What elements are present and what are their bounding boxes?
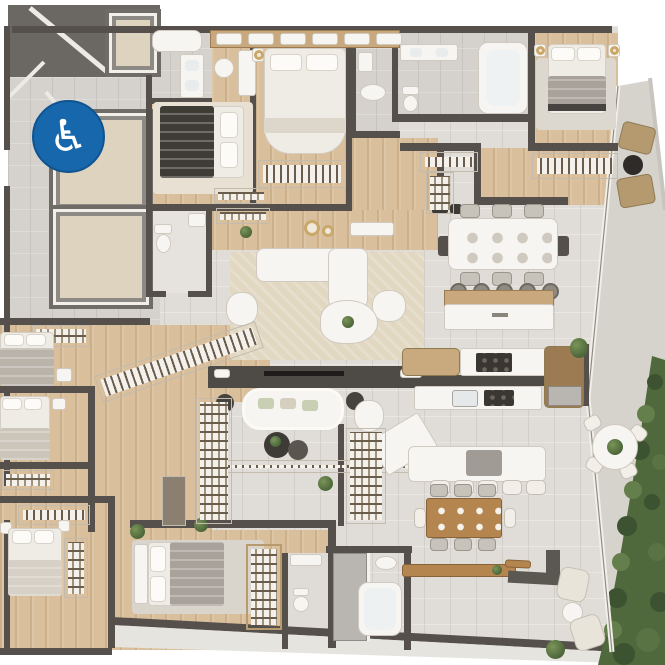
pillow bbox=[26, 334, 46, 346]
wardrobe-unit bbox=[246, 544, 282, 630]
bathtub-inner bbox=[486, 50, 520, 106]
pillow bbox=[150, 546, 166, 572]
wall bbox=[130, 520, 335, 528]
sofa-cushion bbox=[280, 398, 296, 409]
duvet bbox=[0, 428, 50, 460]
elevator-cab-2 bbox=[56, 212, 146, 302]
duvet bbox=[8, 560, 62, 596]
closet-drawer bbox=[344, 33, 370, 45]
plant bbox=[270, 436, 281, 447]
island-cooktop-inset bbox=[466, 450, 502, 476]
pillow bbox=[24, 398, 42, 410]
dining-chair bbox=[524, 204, 544, 218]
family-chair bbox=[478, 484, 496, 497]
wall bbox=[0, 496, 114, 503]
nightstand bbox=[56, 368, 72, 382]
pillow bbox=[12, 530, 32, 544]
vanity-double bbox=[400, 44, 458, 61]
closet-rail bbox=[420, 152, 478, 172]
closet-rail bbox=[532, 153, 618, 179]
toilet bbox=[375, 556, 397, 570]
sofa-cushion bbox=[258, 398, 274, 409]
wall bbox=[282, 553, 288, 649]
closet-rail bbox=[18, 505, 90, 525]
table-lamp bbox=[536, 46, 545, 55]
closet-shelf-tall bbox=[196, 398, 232, 524]
sink bbox=[185, 60, 199, 71]
pillow bbox=[551, 47, 575, 61]
pillow bbox=[2, 398, 22, 410]
dining-place-settings bbox=[454, 224, 552, 264]
headboard bbox=[134, 544, 148, 604]
wall bbox=[206, 211, 212, 293]
island-stool bbox=[502, 480, 522, 495]
closet-drawer bbox=[216, 33, 242, 45]
pillow bbox=[150, 576, 166, 602]
coffee-table-round bbox=[288, 440, 308, 460]
closet-drawer bbox=[312, 33, 338, 45]
wall bbox=[4, 26, 10, 150]
pillow bbox=[220, 142, 238, 168]
outdoor-lounge-chair bbox=[616, 173, 657, 209]
bedroom-shelf bbox=[214, 188, 268, 204]
fridge bbox=[548, 386, 582, 406]
toilet bbox=[360, 84, 386, 101]
family-chair-end bbox=[504, 508, 516, 528]
sink bbox=[436, 48, 448, 57]
serving-tray bbox=[505, 559, 531, 568]
wall bbox=[392, 114, 534, 122]
family-table bbox=[426, 498, 502, 538]
plant bbox=[570, 338, 588, 358]
duvet bbox=[0, 348, 54, 386]
upper-cabinets bbox=[402, 348, 460, 376]
pillow bbox=[306, 54, 338, 71]
island-body bbox=[444, 304, 554, 330]
nightstand bbox=[52, 398, 66, 410]
media-cabinet bbox=[214, 369, 230, 378]
pillow bbox=[34, 530, 54, 544]
duvet-gray bbox=[170, 542, 224, 606]
pillow bbox=[220, 112, 238, 138]
wall bbox=[146, 291, 166, 297]
elevator-cab-small bbox=[112, 16, 154, 70]
wall bbox=[0, 462, 92, 469]
toilet-bowl bbox=[403, 95, 418, 112]
plant bbox=[240, 226, 252, 238]
dining-chair bbox=[492, 204, 512, 218]
kitchen-peninsula bbox=[414, 386, 542, 410]
wheelchair-icon: ♿ bbox=[49, 115, 88, 159]
closet-drawer bbox=[248, 33, 274, 45]
bathtub-inner bbox=[364, 588, 396, 630]
wall bbox=[0, 318, 150, 325]
sink bbox=[188, 213, 206, 227]
toilet-bowl bbox=[156, 234, 171, 253]
bed-footboard bbox=[548, 104, 606, 111]
tv-screen bbox=[264, 371, 344, 376]
sink bbox=[185, 80, 199, 91]
pillow bbox=[4, 334, 24, 346]
wall bbox=[108, 496, 115, 648]
family-chair bbox=[454, 484, 472, 497]
island-stool bbox=[526, 480, 546, 495]
cooktop bbox=[484, 390, 514, 406]
toilet bbox=[293, 588, 309, 596]
bathtub bbox=[152, 30, 202, 52]
curved-sofa bbox=[242, 388, 344, 430]
wall bbox=[528, 143, 618, 151]
dresser-shelf bbox=[2, 470, 54, 490]
console-table bbox=[350, 222, 394, 236]
table-lamp bbox=[610, 46, 619, 55]
console-shelf bbox=[216, 208, 270, 224]
wall bbox=[338, 424, 344, 526]
closet-shelf bbox=[426, 172, 454, 214]
wall bbox=[0, 386, 92, 393]
bed-throw bbox=[264, 118, 346, 133]
family-chair bbox=[478, 538, 496, 551]
wall bbox=[348, 131, 400, 138]
cooktop bbox=[476, 353, 512, 372]
wall bbox=[0, 648, 112, 655]
plant bbox=[318, 476, 333, 491]
wall bbox=[188, 291, 212, 297]
closet-rail bbox=[258, 160, 346, 188]
wardrobe-hall bbox=[346, 428, 386, 524]
sofa-chaise bbox=[328, 248, 368, 308]
closet-drawer bbox=[376, 33, 402, 45]
toilet bbox=[402, 86, 419, 95]
wall bbox=[404, 546, 411, 650]
wall bbox=[326, 546, 412, 553]
sofa-cushion bbox=[302, 400, 318, 411]
family-chair bbox=[454, 538, 472, 551]
vanity-stool bbox=[214, 58, 234, 78]
floor-plan: ♿ bbox=[0, 0, 665, 665]
accessibility-badge: ♿ bbox=[32, 100, 105, 173]
pillow bbox=[577, 47, 601, 61]
plant bbox=[342, 316, 354, 328]
stair-wall-diagonal-2 bbox=[8, 62, 44, 98]
plant bbox=[492, 565, 502, 575]
sink bbox=[410, 48, 422, 57]
table-lamp bbox=[254, 50, 264, 60]
plant bbox=[607, 439, 623, 455]
pillow bbox=[270, 54, 302, 71]
plant bbox=[130, 524, 145, 539]
kitchen-sink bbox=[452, 390, 478, 407]
plant-pot bbox=[546, 640, 565, 659]
dining-chair bbox=[460, 204, 480, 218]
vanity bbox=[290, 554, 322, 566]
wall bbox=[146, 75, 152, 297]
outdoor-side-table bbox=[623, 155, 643, 175]
shelf-unit bbox=[64, 538, 88, 598]
sink bbox=[358, 52, 373, 72]
toilet bbox=[154, 224, 172, 234]
family-chair-end bbox=[414, 508, 426, 528]
toilet-bowl bbox=[293, 596, 309, 612]
closet-drawer bbox=[280, 33, 306, 45]
duvet-dark bbox=[160, 106, 214, 178]
closet-dark-unit bbox=[162, 476, 186, 526]
round-mirror bbox=[322, 225, 334, 237]
island-handle bbox=[492, 313, 508, 317]
family-chair bbox=[430, 484, 448, 497]
family-chair bbox=[430, 538, 448, 551]
round-mirror bbox=[304, 220, 320, 236]
